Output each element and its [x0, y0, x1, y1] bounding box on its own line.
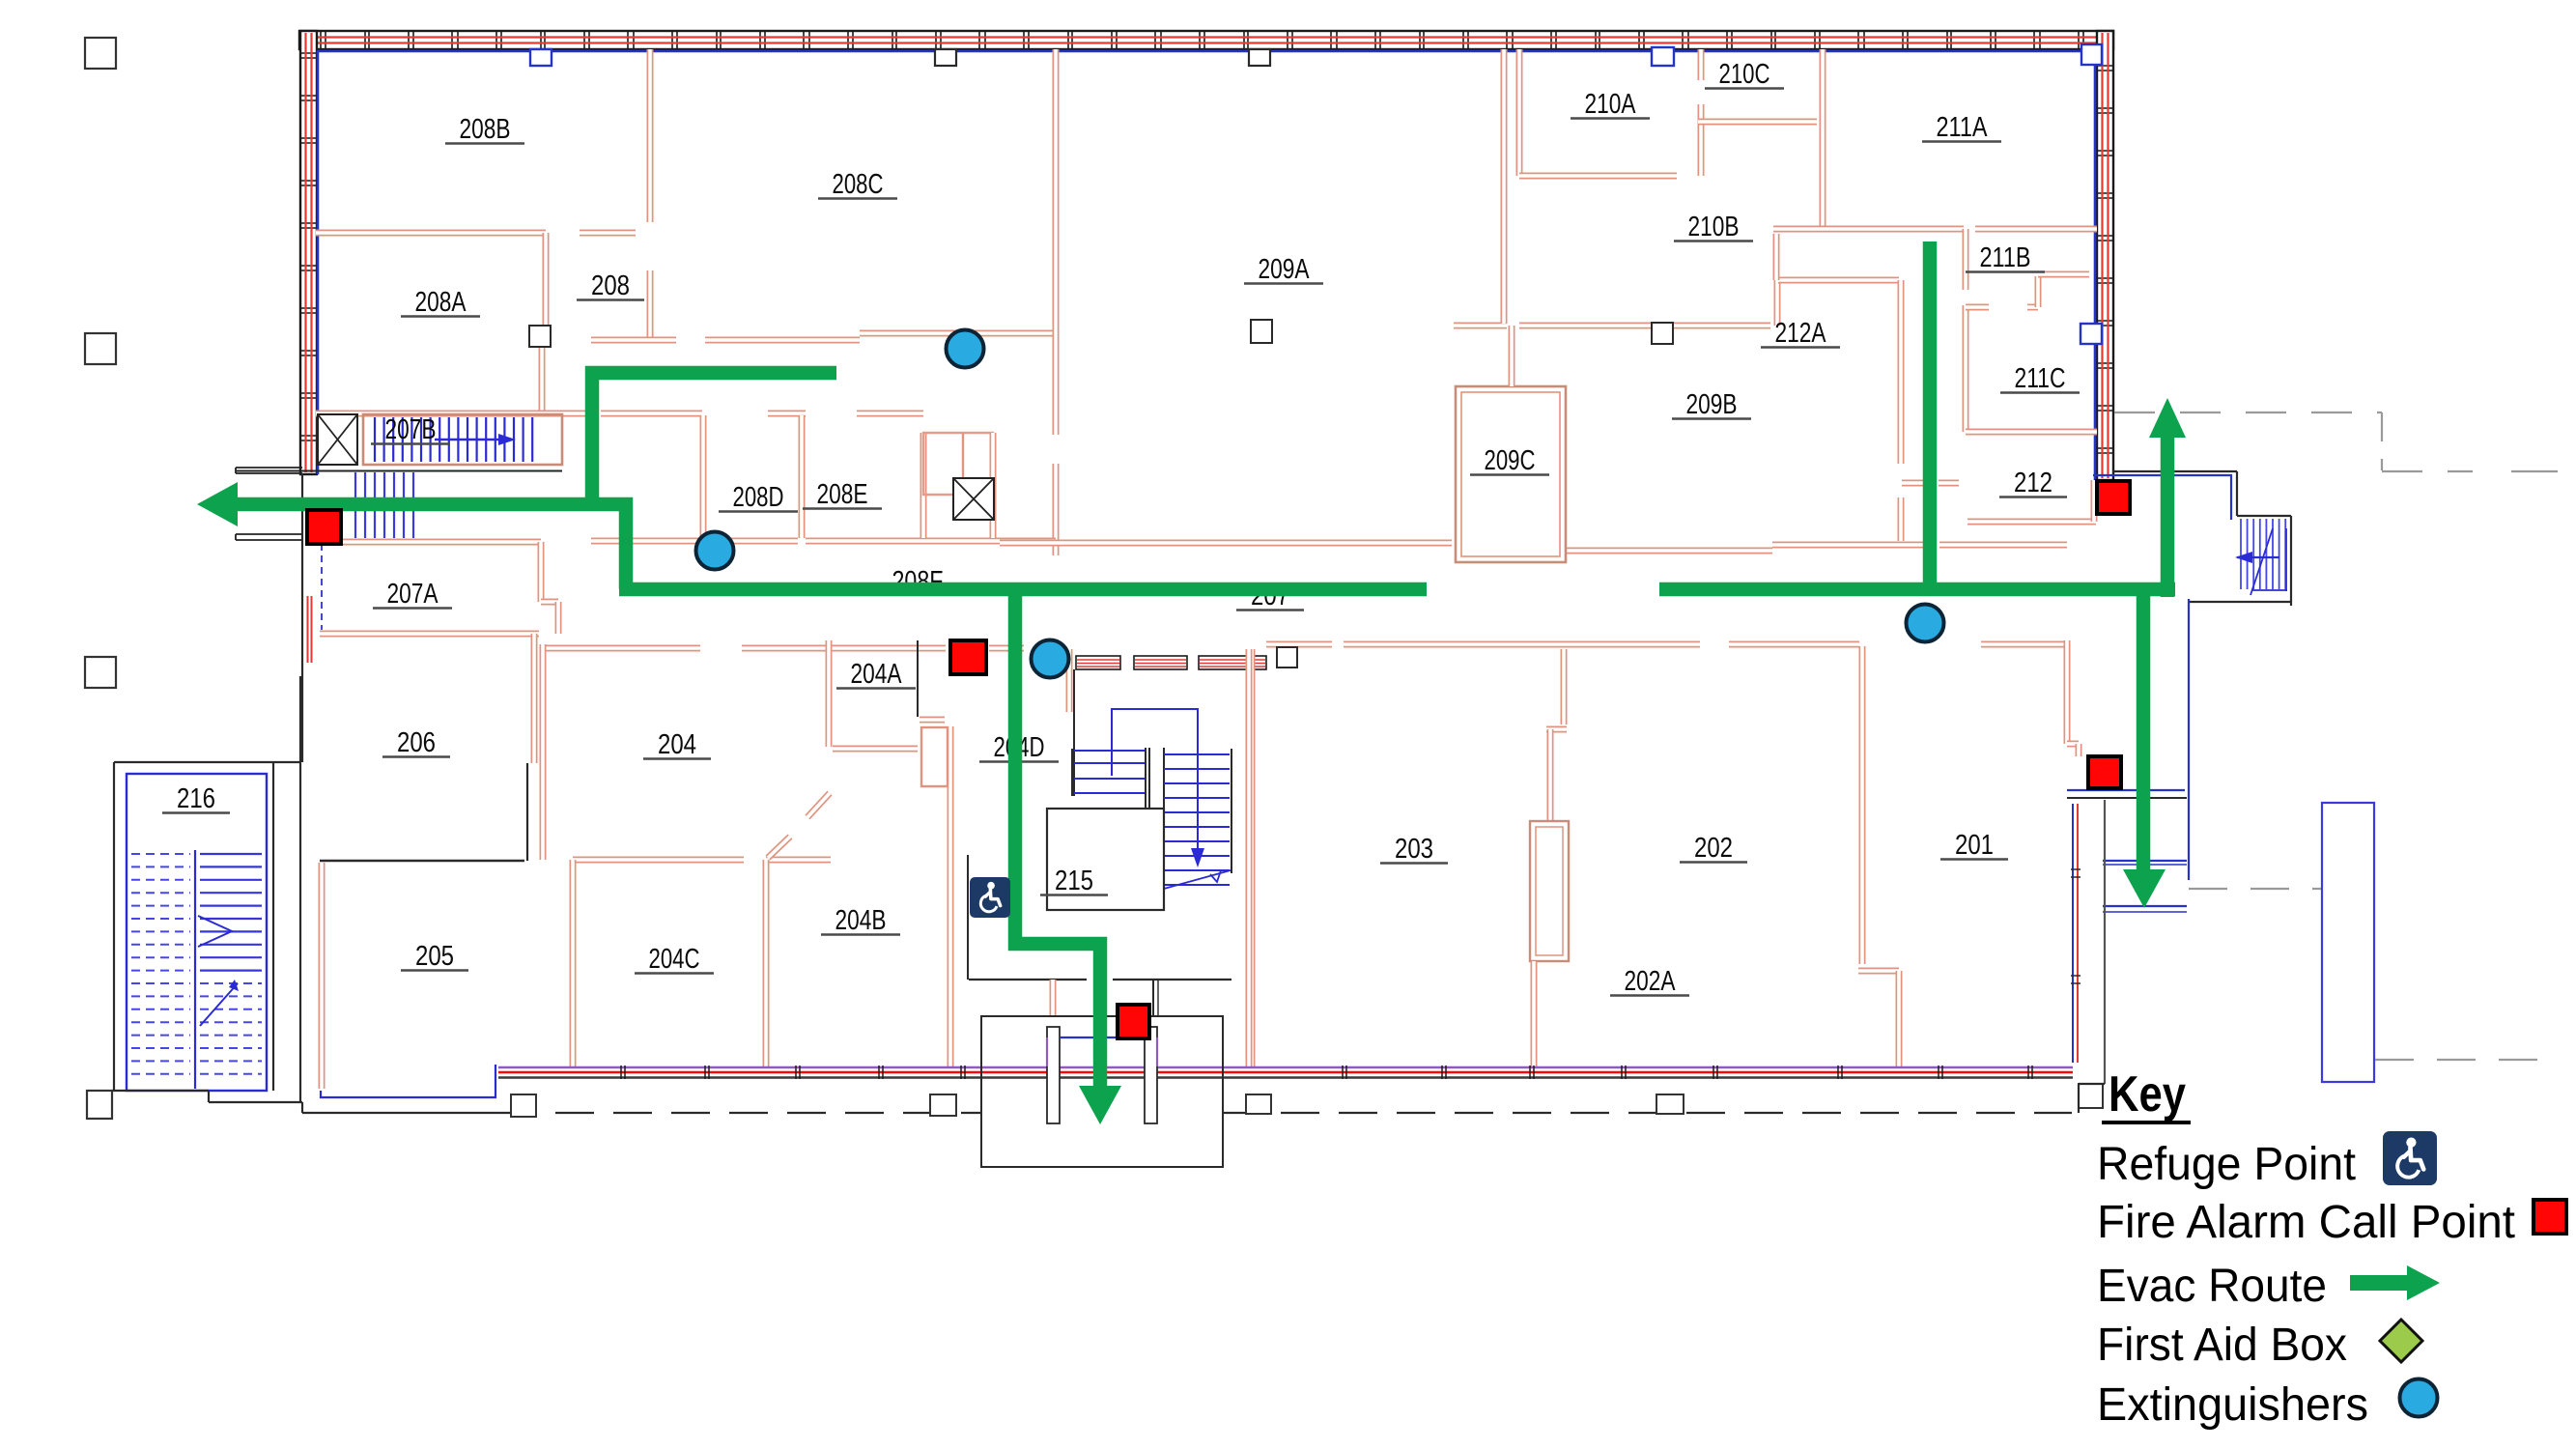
- svg-text:210C: 210C: [1719, 59, 1770, 90]
- svg-text:207B: 207B: [385, 414, 437, 445]
- svg-text:207A: 207A: [387, 579, 439, 610]
- svg-text:Key: Key: [2109, 1066, 2186, 1122]
- svg-text:208A: 208A: [415, 287, 467, 318]
- svg-text:216: 216: [177, 783, 215, 814]
- svg-text:206: 206: [397, 727, 436, 758]
- svg-text:211C: 211C: [2015, 363, 2066, 394]
- svg-text:Fire Alarm Call Point: Fire Alarm Call Point: [2097, 1197, 2515, 1248]
- svg-text:209C: 209C: [1485, 445, 1536, 476]
- svg-text:202A: 202A: [1625, 966, 1677, 997]
- svg-text:203: 203: [1395, 834, 1433, 865]
- svg-text:Refuge Point: Refuge Point: [2097, 1139, 2356, 1190]
- svg-text:208E: 208E: [817, 479, 868, 510]
- svg-text:204C: 204C: [649, 944, 700, 975]
- svg-text:205: 205: [415, 941, 454, 972]
- svg-text:210B: 210B: [1688, 212, 1740, 242]
- svg-text:210A: 210A: [1585, 89, 1637, 120]
- svg-text:208C: 208C: [833, 169, 884, 200]
- svg-text:201: 201: [1955, 830, 1994, 861]
- svg-text:208D: 208D: [733, 482, 784, 513]
- svg-text:Evac Route: Evac Route: [2097, 1261, 2327, 1312]
- svg-text:208: 208: [591, 270, 630, 301]
- svg-text:211B: 211B: [1980, 242, 2031, 273]
- svg-text:Extinguishers: Extinguishers: [2097, 1379, 2368, 1431]
- svg-text:211A: 211A: [1937, 112, 1989, 143]
- svg-text:202: 202: [1694, 833, 1733, 864]
- svg-text:208B: 208B: [460, 114, 511, 145]
- svg-text:204B: 204B: [835, 905, 887, 936]
- svg-text:212A: 212A: [1775, 318, 1827, 349]
- svg-text:First Aid Box: First Aid Box: [2097, 1320, 2347, 1371]
- svg-text:204A: 204A: [851, 659, 903, 690]
- svg-text:215: 215: [1055, 866, 1093, 896]
- svg-text:212: 212: [2014, 468, 2052, 498]
- svg-text:204: 204: [658, 729, 696, 760]
- svg-text:209A: 209A: [1259, 254, 1311, 285]
- svg-text:209B: 209B: [1686, 389, 1738, 420]
